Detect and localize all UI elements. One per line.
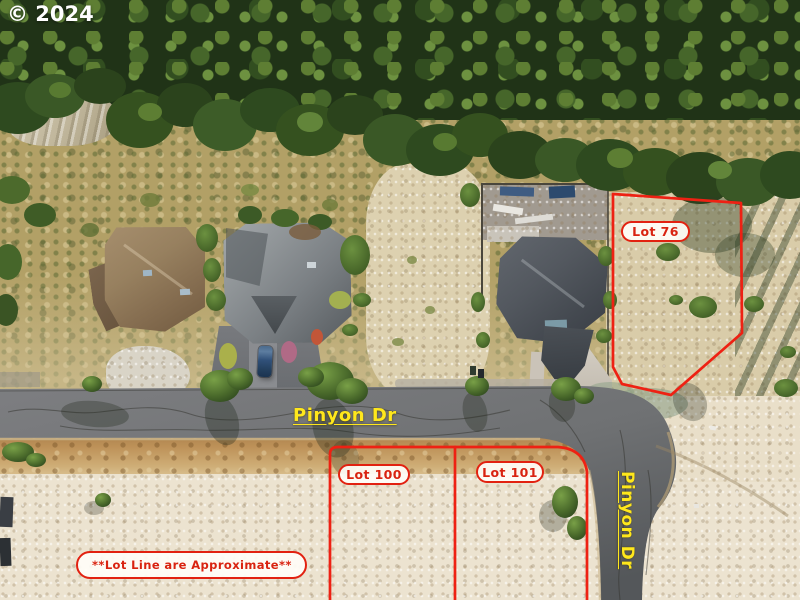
small-object bbox=[710, 426, 717, 431]
lot-100-label-text: Lot 100 bbox=[346, 467, 402, 482]
lot-101-label: Lot 101 bbox=[476, 461, 544, 483]
street-label-pinyon-dr-vertical: Pinyon Dr bbox=[617, 471, 637, 569]
street-label-pinyon-dr-horizontal: Pinyon Dr bbox=[293, 405, 397, 426]
aerial-photo: © 2024 Lot 76 Lot 100 Lot 101 **Lot Line… bbox=[0, 0, 800, 600]
lot-76-label-text: Lot 76 bbox=[632, 224, 679, 239]
disclaimer-label: **Lot Line are Approximate** bbox=[76, 551, 307, 579]
trash-bin bbox=[478, 369, 484, 378]
lot-100-label: Lot 100 bbox=[338, 464, 410, 485]
disclaimer-text: **Lot Line are Approximate** bbox=[92, 558, 292, 572]
forest-canopy-clumps bbox=[0, 68, 800, 206]
scene-overlay bbox=[0, 0, 800, 600]
small-object bbox=[694, 504, 699, 508]
copyright-watermark: © 2024 bbox=[7, 2, 94, 26]
trash-bin bbox=[470, 366, 476, 375]
lot-101-label-text: Lot 101 bbox=[482, 465, 538, 480]
vegetation bbox=[0, 176, 798, 420]
lot-76-label: Lot 76 bbox=[621, 221, 690, 242]
